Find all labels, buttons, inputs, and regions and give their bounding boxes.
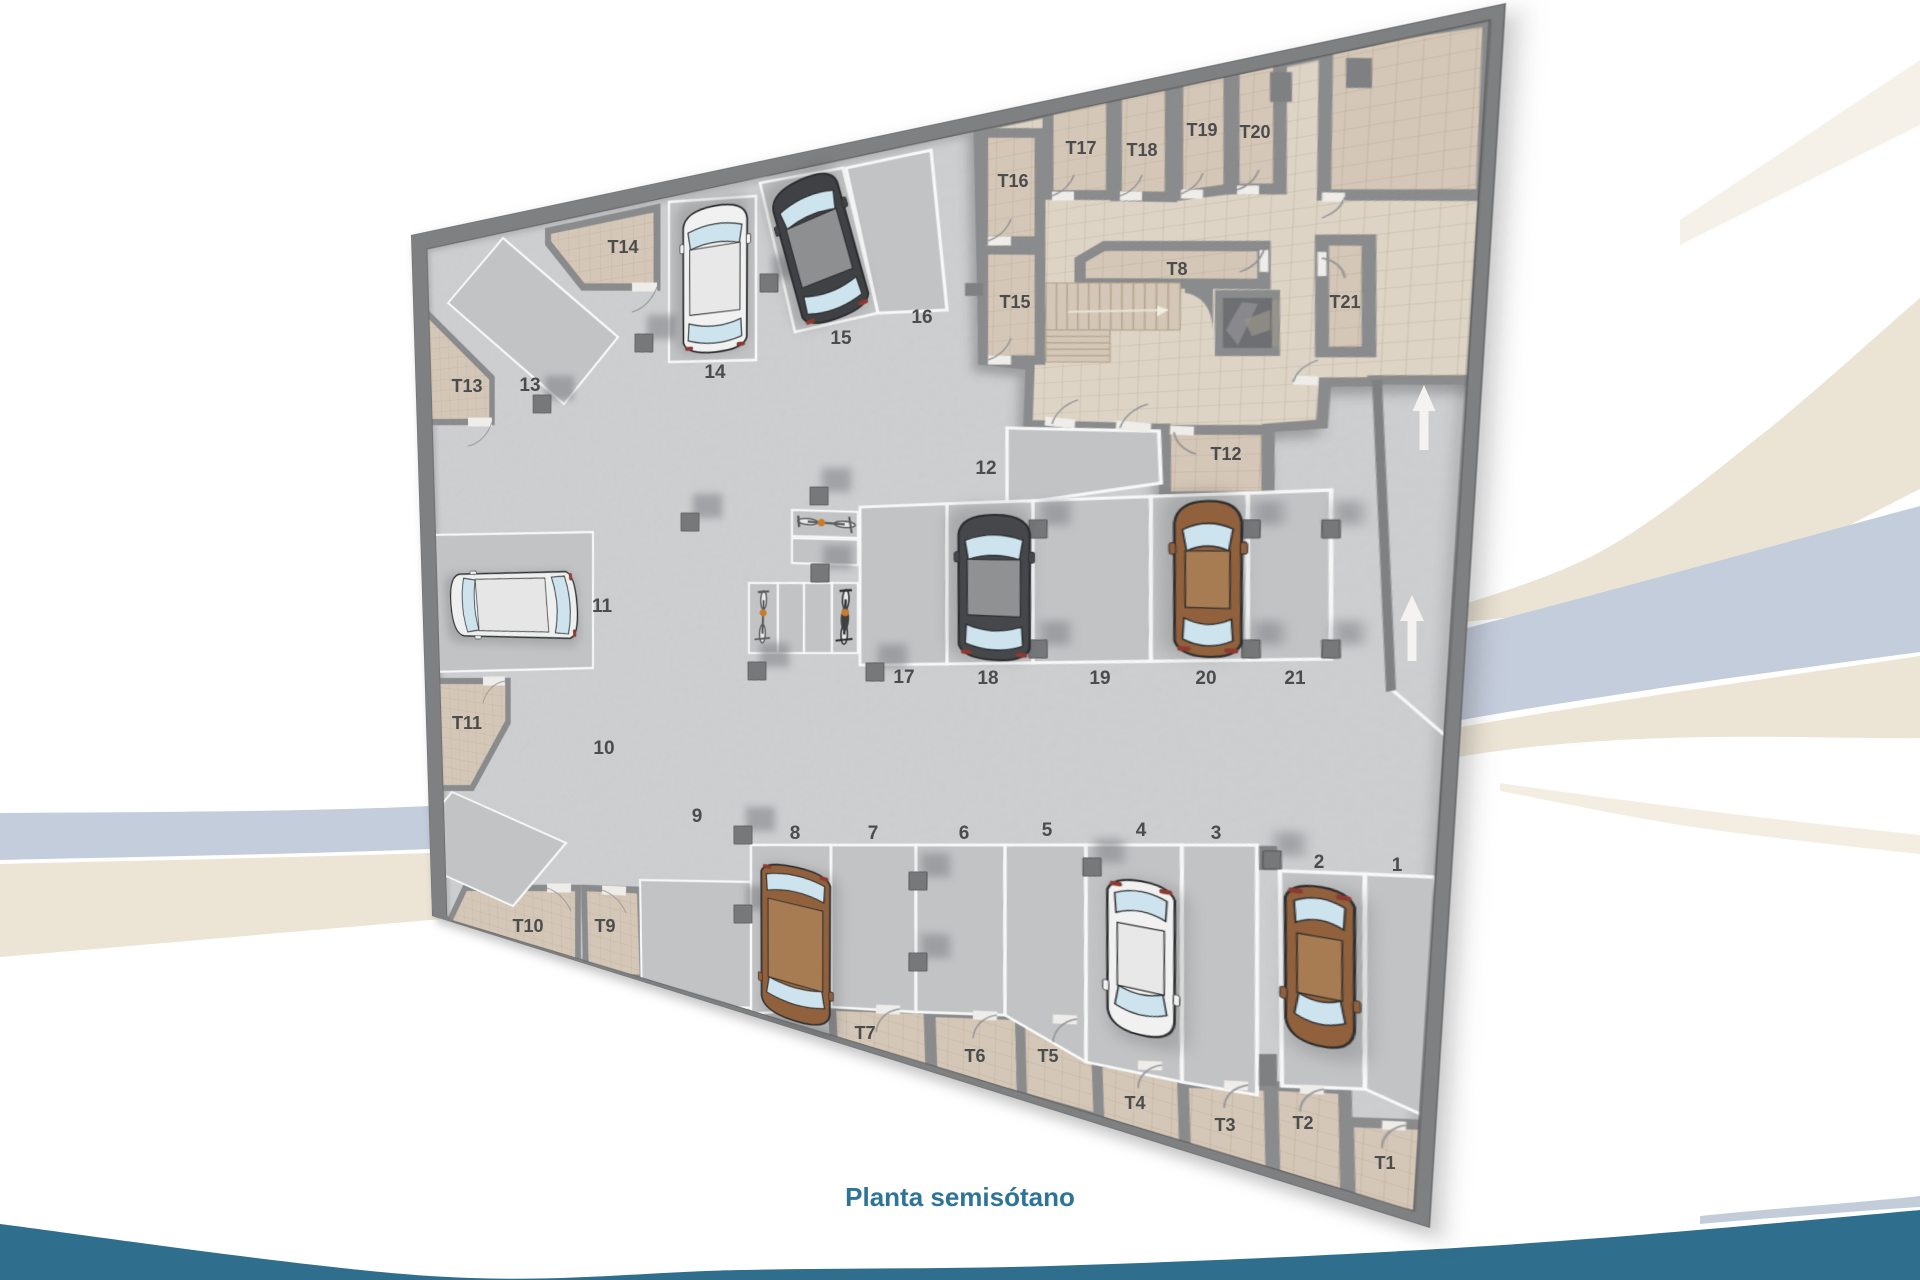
svg-text:10: 10: [593, 738, 614, 759]
svg-text:T13: T13: [451, 376, 482, 396]
svg-text:T15: T15: [999, 292, 1030, 312]
svg-text:T11: T11: [452, 713, 482, 733]
svg-text:6: 6: [959, 823, 970, 844]
svg-text:T17: T17: [1065, 138, 1096, 158]
svg-text:T2: T2: [1292, 1113, 1313, 1133]
svg-text:Planta semisótano: Planta semisótano: [845, 1182, 1075, 1212]
svg-text:16: 16: [911, 307, 932, 328]
svg-text:T12: T12: [1210, 444, 1241, 464]
svg-text:T20: T20: [1239, 122, 1270, 142]
svg-text:15: 15: [830, 328, 852, 349]
svg-text:T1: T1: [1374, 1153, 1395, 1173]
svg-text:T19: T19: [1186, 120, 1217, 140]
svg-text:2: 2: [1314, 852, 1325, 873]
svg-text:T6: T6: [964, 1046, 985, 1066]
svg-text:T18: T18: [1126, 140, 1157, 160]
svg-text:T4: T4: [1124, 1093, 1145, 1113]
svg-text:12: 12: [975, 458, 996, 479]
svg-text:T5: T5: [1037, 1046, 1058, 1066]
svg-text:5: 5: [1042, 820, 1053, 841]
svg-text:T16: T16: [997, 171, 1028, 191]
svg-text:T7: T7: [854, 1023, 875, 1043]
svg-text:17: 17: [893, 667, 914, 688]
svg-text:14: 14: [704, 362, 726, 383]
svg-text:18: 18: [977, 668, 998, 689]
svg-text:1: 1: [1392, 855, 1403, 876]
svg-text:4: 4: [1136, 820, 1147, 841]
svg-text:T10: T10: [512, 916, 543, 936]
svg-text:7: 7: [868, 823, 879, 844]
svg-text:21: 21: [1284, 668, 1306, 689]
svg-text:T9: T9: [594, 916, 615, 936]
svg-text:T21: T21: [1329, 292, 1360, 312]
svg-text:11: 11: [592, 596, 613, 617]
svg-text:T3: T3: [1214, 1115, 1235, 1135]
svg-text:20: 20: [1195, 668, 1216, 689]
svg-text:9: 9: [692, 806, 703, 827]
svg-text:T14: T14: [607, 237, 638, 257]
svg-text:8: 8: [790, 823, 801, 844]
svg-text:19: 19: [1089, 668, 1110, 689]
svg-text:3: 3: [1211, 823, 1222, 844]
svg-text:13: 13: [519, 375, 540, 396]
svg-text:T8: T8: [1166, 259, 1187, 279]
